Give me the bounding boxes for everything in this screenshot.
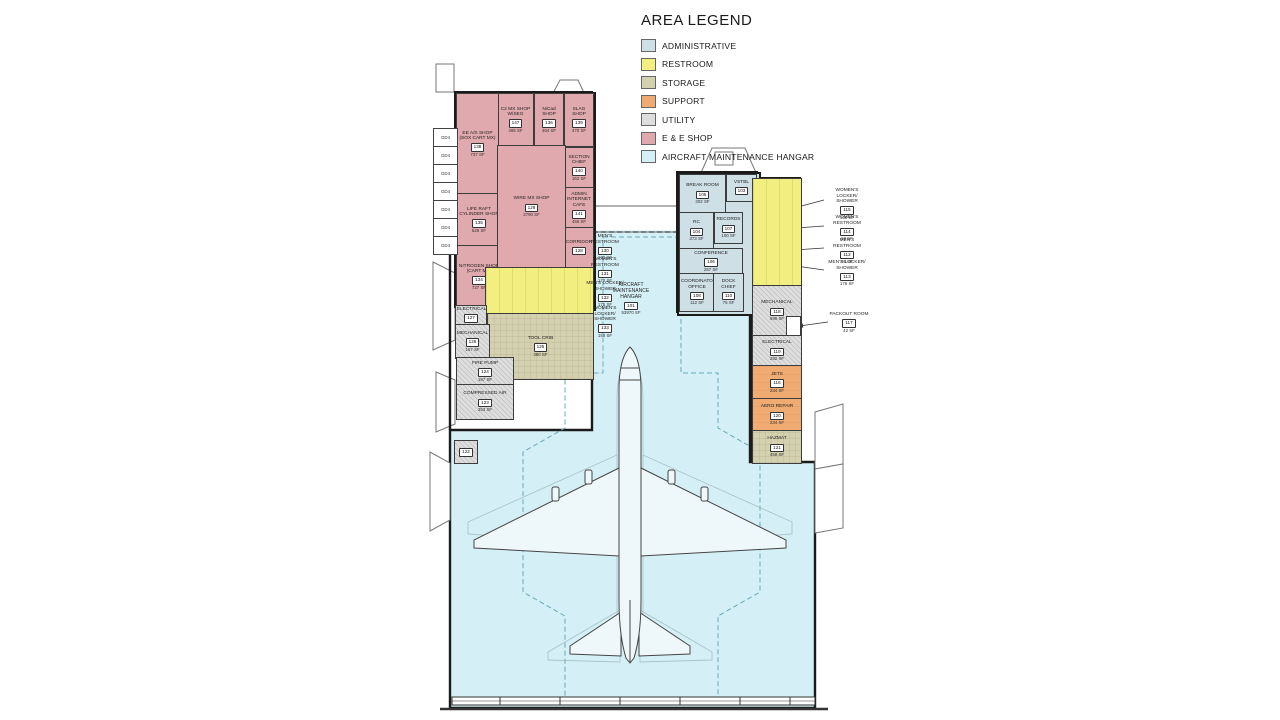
room-hazmat: HAZMAT121458 SF: [752, 430, 802, 464]
room-slag-shop: SLAG SHOP139470 SF: [564, 93, 594, 147]
legend-entry-storage: STORAGE: [641, 76, 871, 89]
legend-chip-storage: [641, 76, 656, 89]
room-mechanical-126: MECHANICAL126167 SF: [455, 324, 490, 359]
room-wire-mx-shop: WIRE MX SHOP1292790 SF: [497, 145, 566, 269]
room-admin-internet-cafe: ADMIN INTERNET CAFE141456 SF: [564, 187, 594, 229]
west-module-3: GD4: [433, 164, 458, 183]
legend-entry-restroom: RESTROOM: [641, 58, 871, 71]
room-dock-chief: DOCK CHIEF11075 SF: [713, 273, 744, 312]
room-aero-repair: AERO REPAIR120234 SF: [752, 398, 802, 432]
west-module-2: GD4: [433, 146, 458, 165]
legend-chip-restroom: [641, 58, 656, 71]
room-records: RECORDS107100 SF: [714, 212, 743, 244]
west-module-7: GD4: [433, 236, 458, 255]
legend-chip-administrative: [641, 39, 656, 52]
room-nicad-shop: NiCad SHOP136464 SF: [534, 93, 564, 147]
legend-entry-administrative: ADMINISTRATIVE: [641, 39, 871, 52]
room-compressed-air: COMPRESSED AIR123353 SF: [456, 384, 514, 420]
callout-womens-locker-shower-133: WOMEN'S LOCKER/ SHOWER133158 SF: [582, 306, 628, 338]
room-fire-pump: FIRE PUMP124187 SF: [456, 357, 514, 386]
restroom-block-east: [752, 178, 802, 287]
room-break-room: BREAK ROOM105302 SF: [679, 174, 726, 214]
room-122: 122: [454, 440, 478, 464]
west-module-4: GD4: [433, 182, 458, 201]
room-jets: JETS116234 SF: [752, 365, 802, 400]
west-module-6: GD4: [433, 218, 458, 237]
west-module-5: GD4: [433, 200, 458, 219]
restroom-block-west: [485, 267, 594, 315]
floorplan-graphics: [0, 0, 1280, 720]
legend-entry-support: SUPPORT: [641, 95, 871, 108]
legend-entry-utility: UTILITY: [641, 113, 871, 126]
room-rc: RC104373 SF: [679, 212, 714, 250]
room-conference: CONFERENCE106257 SF: [679, 248, 743, 275]
room-electrical-119: ELECTRICAL119292 SF: [752, 335, 802, 367]
room-c2-mx-shop: C2 MX SHOP W/SEG147465 SF: [497, 93, 534, 147]
room-electrical-127: ELECTRICAL127: [455, 305, 487, 326]
legend-chip-ee-shop: [641, 132, 656, 145]
legend-entry-hangar: AIRCRAFT MAINTENANCE HANGAR: [641, 150, 871, 163]
legend-chip-support: [641, 95, 656, 108]
west-module-1: GD4: [433, 128, 458, 147]
room-life-raft-cylinder-shop: LIFE RAFT CYLINDER SHOP135526 SF: [456, 193, 502, 247]
legend-title: AREA LEGEND: [641, 12, 871, 29]
room-coordinator-office: COORDINATOR OFFICE108112 SF: [679, 273, 715, 312]
callout-packout-room-117: PACKOUT ROOM11742 SF: [826, 312, 872, 333]
legend-chip-hangar: [641, 150, 656, 163]
callout-mens-locker-shower-113: MEN'S LOCKER/ SHOWER113176 SF: [824, 260, 870, 287]
callout-mens-locker-shower-132: MEN'S LOCKER/ SHOWER132175 SF: [582, 281, 628, 308]
legend-chip-utility: [641, 113, 656, 126]
area-legend: AREA LEGEND ADMINISTRATIVE RESTROOM STOR…: [641, 12, 871, 169]
room-section-chief: SECTION CHIEF140162 SF: [564, 147, 594, 189]
room-ee-as-shop: EE A/S SHOP (SOX CART MX)138737 SF: [456, 93, 499, 195]
callout-womens-restroom-131: WOMEN'S RESTROOM131170 SF: [582, 257, 628, 284]
legend-entry-ee-shop: E & E SHOP: [641, 132, 871, 145]
floor-plan-canvas: AREA LEGEND ADMINISTRATIVE RESTROOM STOR…: [0, 0, 1280, 720]
